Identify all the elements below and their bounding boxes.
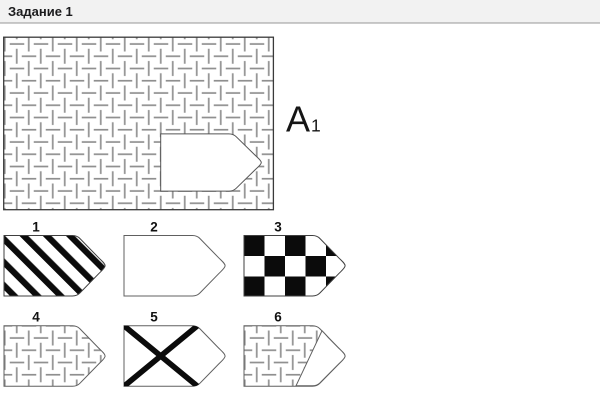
svg-text:4: 4	[32, 310, 40, 325]
svg-text:A: A	[286, 99, 310, 140]
svg-text:1: 1	[32, 220, 40, 235]
svg-text:1: 1	[311, 116, 321, 136]
svg-text:5: 5	[150, 310, 158, 325]
svg-text:3: 3	[274, 220, 282, 235]
svg-text:6: 6	[274, 310, 282, 325]
svg-text:Задание 1: Задание 1	[8, 4, 73, 19]
svg-text:2: 2	[150, 220, 158, 235]
